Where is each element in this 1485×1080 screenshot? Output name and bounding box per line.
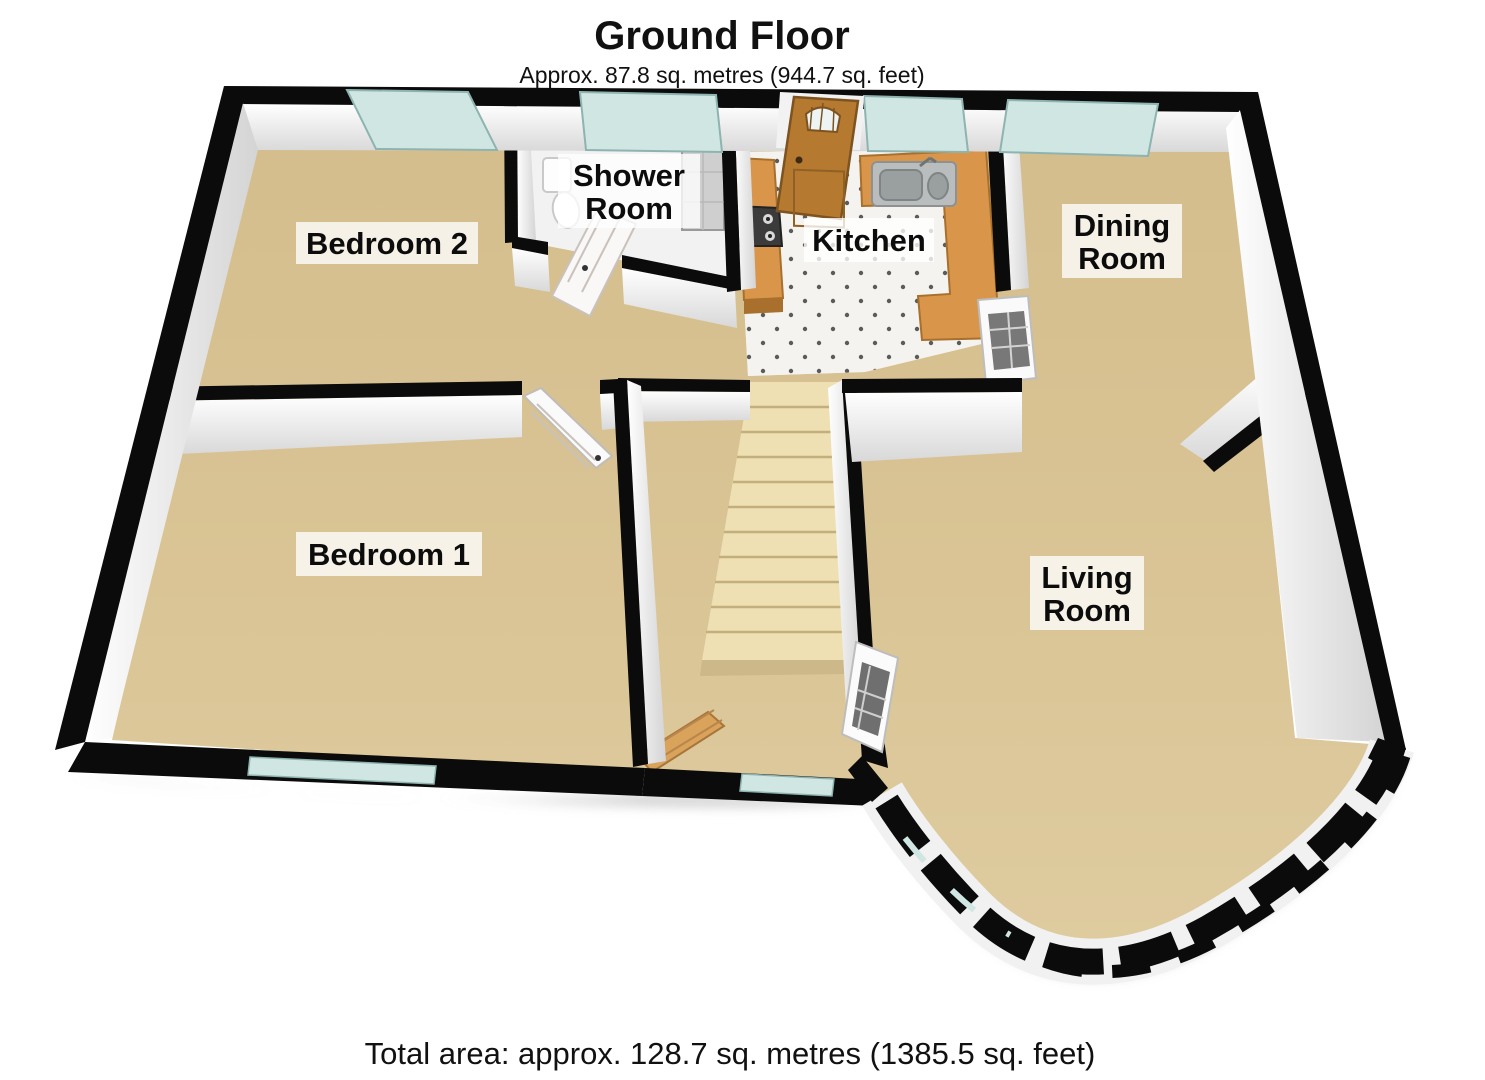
- kitchen-window: [864, 96, 968, 152]
- svg-text:Kitchen: Kitchen: [812, 223, 926, 258]
- total-area-text: Total area: approx. 128.7 sq. metres (13…: [365, 1036, 1096, 1072]
- dining-radiator: [978, 296, 1036, 384]
- page-subtitle: Approx. 87.8 sq. metres (944.7 sq. feet): [519, 62, 924, 89]
- svg-text:Shower: Shower: [573, 158, 685, 193]
- svg-text:Living: Living: [1041, 560, 1132, 595]
- dining-window: [1000, 100, 1158, 156]
- floor-plan-svg: Bedroom 2 Shower Room Kitchen Dining Roo…: [0, 0, 1485, 1080]
- room-label-shower-room: Shower Room: [558, 154, 700, 228]
- room-label-kitchen: Kitchen: [804, 218, 934, 262]
- svg-text:Room: Room: [1078, 241, 1166, 276]
- page-title: Ground Floor: [519, 14, 924, 58]
- wall-living-top: [842, 378, 1022, 462]
- svg-text:Room: Room: [1043, 593, 1131, 628]
- svg-text:Room: Room: [585, 191, 673, 226]
- svg-text:Dining: Dining: [1074, 208, 1170, 243]
- room-label-bedroom-2: Bedroom 2: [296, 222, 478, 264]
- title-block: Ground Floor Approx. 87.8 sq. metres (94…: [519, 14, 924, 89]
- shower-window: [580, 92, 722, 152]
- kitchen-sink: [872, 158, 956, 206]
- room-label-bedroom-1: Bedroom 1: [296, 532, 482, 576]
- svg-text:Bedroom 1: Bedroom 1: [308, 537, 470, 572]
- room-label-dining-room: Dining Room: [1062, 204, 1182, 278]
- floor-plan-page: Ground Floor Approx. 87.8 sq. metres (94…: [0, 0, 1485, 1080]
- svg-text:Bedroom 2: Bedroom 2: [306, 226, 468, 261]
- room-label-living-room: Living Room: [1030, 556, 1144, 630]
